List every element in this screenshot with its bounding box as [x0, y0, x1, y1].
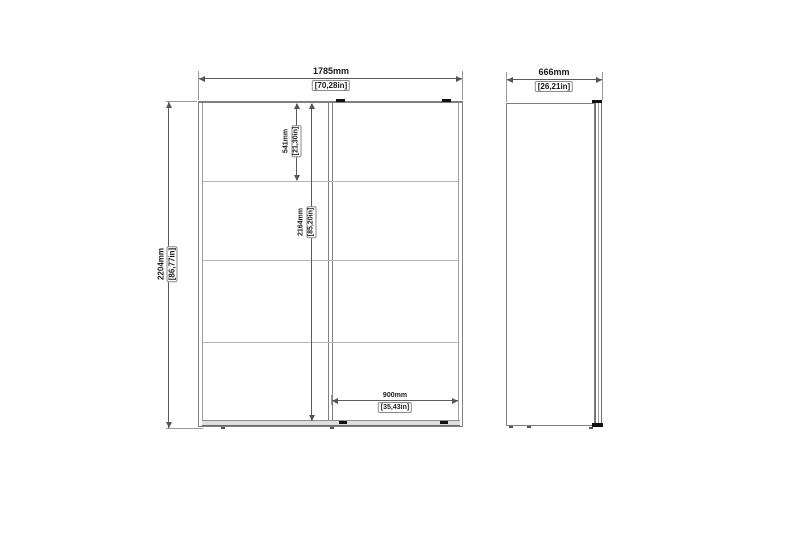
dim-front-height-mm: 2204mm — [157, 248, 166, 280]
dim-side-depth-arrow-right — [596, 77, 602, 83]
dim-door-width-arrow-left — [332, 398, 338, 404]
front-foot-tick-1 — [221, 427, 225, 429]
dim-interior-height-arrow-bottom — [309, 415, 315, 421]
front-top-bracket-right — [442, 99, 451, 102]
dim-front-width-mm: 1785mm — [313, 66, 349, 76]
dim-top-section-arrow-bottom — [294, 175, 300, 181]
dim-interior-height-arrow-top — [309, 103, 315, 109]
side-top-cap — [592, 100, 602, 103]
side-outline — [506, 103, 595, 426]
dim-door-width-arrow-right — [452, 398, 458, 404]
dim-side-depth-in: [26,21in] — [535, 81, 573, 92]
side-door-inner-line — [598, 102, 599, 426]
dim-top-section-mm: 541mm — [283, 129, 291, 153]
dim-side-depth-ext-right — [602, 72, 603, 100]
dim-front-width-line — [199, 78, 462, 79]
dim-front-width-arrow-right — [456, 76, 462, 82]
dim-front-width-arrow-left — [199, 76, 205, 82]
dim-front-width-in: [70,28in] — [312, 80, 350, 91]
dim-side-depth-line — [507, 79, 602, 80]
dim-front-height-label: 2204mm [86,77in] — [157, 246, 178, 282]
dim-front-height-in: [86,77in] — [167, 246, 178, 282]
front-top-bracket-left — [336, 99, 345, 102]
dim-interior-height-mm: 2164mm — [298, 208, 306, 236]
dim-interior-height-in: [85,20in] — [307, 206, 317, 238]
front-left-inner-edge — [202, 103, 203, 425]
front-foot-tick-2 — [330, 427, 334, 429]
front-center-door-edge-right — [332, 103, 333, 425]
dim-front-height-ext-bottom — [166, 428, 203, 429]
front-bottom-roller-left — [339, 421, 347, 424]
dim-door-width-mm: 900mm — [383, 391, 407, 401]
side-foot-tick-3 — [589, 427, 593, 429]
dim-front-height-arrow-top — [166, 102, 172, 108]
technical-drawing-canvas: 1785mm [70,28in] 2204mm [86,77in] 541mm … — [0, 0, 800, 533]
dim-side-depth-mm: 666mm — [538, 67, 569, 77]
dim-side-depth-arrow-left — [507, 77, 513, 83]
front-divider-line-3 — [203, 342, 458, 343]
dim-interior-height-label: 2164mm [85,20in] — [298, 206, 317, 238]
dim-door-width-in: [35,43in] — [378, 402, 412, 413]
front-divider-line-1 — [203, 181, 458, 182]
front-right-inner-edge — [458, 103, 459, 425]
side-foot-tick-2 — [527, 426, 531, 428]
dim-front-width-ext-right — [462, 71, 463, 100]
dim-front-height-arrow-bottom — [166, 422, 172, 428]
dim-top-section-arrow-top — [294, 103, 300, 109]
front-outline — [198, 101, 463, 427]
dim-interior-height-line — [311, 104, 312, 421]
front-bottom-roller-right — [440, 421, 448, 424]
side-bottom-cap — [592, 423, 603, 427]
front-divider-line-2 — [203, 260, 458, 261]
dim-top-section-in: [21,30in] — [292, 125, 302, 157]
side-foot-tick-1 — [509, 426, 513, 428]
front-center-door-edge-left — [328, 103, 329, 425]
dim-door-width-ext-right — [458, 395, 459, 405]
dim-top-section-label: 541mm [21,30in] — [283, 125, 302, 157]
front-plinth — [202, 420, 460, 426]
